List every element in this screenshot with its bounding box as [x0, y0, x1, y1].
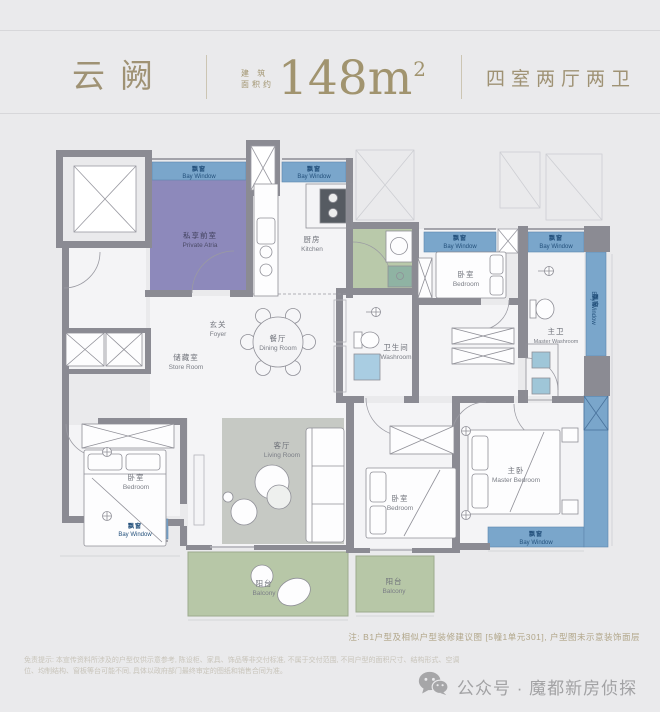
label-bay-atria-zh: 飘窗	[191, 165, 206, 173]
label-bay-atria-en: Bay Window	[182, 174, 216, 180]
label-balcony1-en: Balcony	[252, 590, 276, 597]
label-bedroom-bc-en: Bedroom	[387, 505, 413, 512]
wechat-badge: 公众号 · 魔都新房侦探	[418, 671, 637, 701]
label-balcony2-en: Balcony	[382, 588, 406, 595]
utility-fixtures	[386, 231, 412, 287]
label-bay-kitchen-zh: 飘窗	[306, 165, 321, 173]
label-bedroom-tr-zh: 卧室	[458, 269, 475, 279]
label-foyer-en: Foyer	[210, 331, 227, 338]
plan-note: 注: B1户型及相似户型装修建议图 [5幢1单元301], 户型图未示意装饰面层	[348, 631, 640, 643]
label-bay-right-en: Bay Window	[590, 291, 596, 325]
label-bay-kitchen-en: Bay Window	[297, 174, 331, 180]
wechat-label: 公众号 · 魔都新房侦探	[457, 674, 637, 699]
label-balcony2-zh: 阳台	[386, 576, 403, 586]
floor-plan: 飘窗 Bay Window 飘窗 Bay Window 飘窗 Bay Windo…	[0, 0, 660, 712]
label-living-zh: 客厅	[274, 440, 291, 450]
label-bay-topright-en: Bay Window	[539, 244, 573, 250]
label-bay-master-en: Bay Window	[519, 540, 553, 546]
label-master-washroom-zh: 主卫	[548, 326, 565, 336]
label-washroom-zh: 卫生间	[383, 342, 409, 352]
label-atria-en: Private Atria	[182, 242, 217, 249]
bay-crossed-box	[584, 396, 608, 430]
label-atria-zh: 私享前室	[183, 230, 217, 240]
store-cabinets	[66, 333, 142, 366]
label-master-washroom-en: Master Washroom	[534, 339, 579, 345]
label-store-zh: 储藏室	[173, 352, 199, 362]
label-kitchen-zh: 厨房	[304, 234, 321, 244]
label-dining-zh: 餐厅	[270, 334, 287, 343]
label-bay-bl-zh: 飘窗	[127, 522, 142, 530]
label-bay-bl-en: Bay Window	[118, 532, 152, 538]
label-dining-en: Dining Room	[259, 345, 297, 352]
label-store-en: Store Room	[169, 364, 204, 371]
label-bedroom-bl-en: Bedroom	[123, 484, 149, 491]
label-washroom-en: Washroom	[380, 354, 411, 361]
label-bay-tr-en: Bay Window	[443, 244, 477, 250]
label-living-en: Living Room	[264, 452, 300, 459]
disclaimer-line1: 免责提示: 本宣传资料所涉及的户型仅供示意参考, 陈设柜、家具、饰品等非交付标准…	[24, 655, 624, 666]
label-bay-topright-zh: 飘窗	[548, 234, 563, 242]
label-kitchen-en: Kitchen	[301, 246, 323, 253]
label-bay-master-zh: 飘窗	[528, 530, 543, 538]
page: 云阙 建 筑 面积约 148m2 四室两厅两卫	[0, 0, 660, 712]
label-bay-tr-zh: 飘窗	[452, 234, 467, 242]
label-bedroom-bc-zh: 卧室	[392, 493, 409, 503]
label-bedroom-tr-en: Bedroom	[453, 281, 479, 288]
wechat-icon	[418, 671, 448, 701]
label-bedroom-bl-zh: 卧室	[128, 472, 145, 482]
label-foyer-zh: 玄关	[210, 319, 227, 329]
label-master-bedroom-zh: 主卧	[508, 465, 525, 475]
label-balcony1-zh: 阳台	[256, 578, 273, 588]
label-master-bedroom-en: Master Bedroom	[492, 477, 540, 484]
